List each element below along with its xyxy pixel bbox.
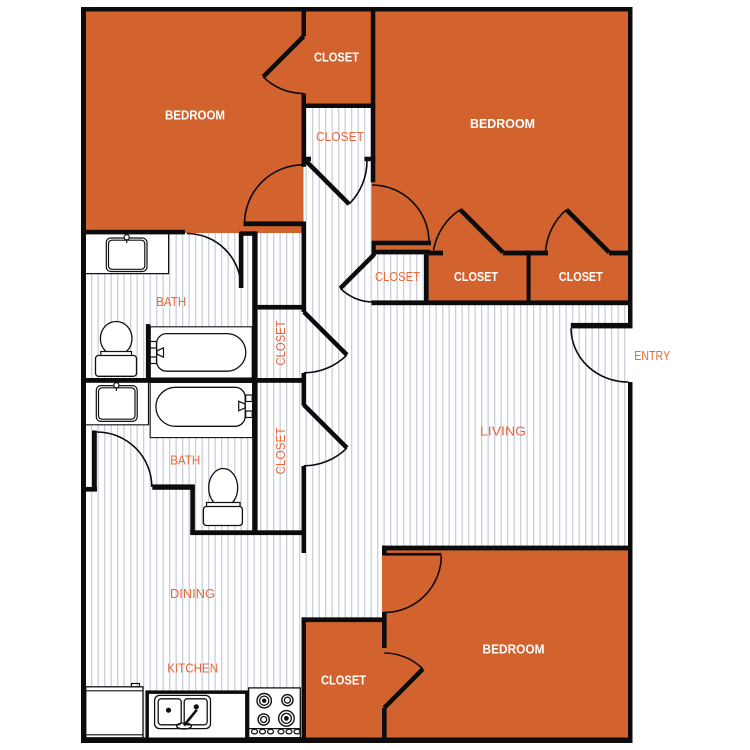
svg-text:DINING: DINING bbox=[170, 586, 215, 601]
svg-text:BATH: BATH bbox=[156, 294, 186, 309]
svg-text:CLOSET: CLOSET bbox=[375, 269, 420, 284]
svg-text:ENTRY: ENTRY bbox=[634, 348, 670, 363]
svg-text:BEDROOM: BEDROOM bbox=[470, 116, 535, 131]
svg-text:CLOSET: CLOSET bbox=[454, 269, 498, 284]
svg-text:BEDROOM: BEDROOM bbox=[165, 108, 225, 123]
svg-text:CLOSET: CLOSET bbox=[273, 427, 288, 474]
svg-text:LIVING: LIVING bbox=[480, 424, 526, 439]
svg-text:CLOSET: CLOSET bbox=[559, 269, 603, 284]
svg-text:CLOSET: CLOSET bbox=[316, 129, 364, 144]
svg-text:CLOSET: CLOSET bbox=[273, 320, 288, 365]
svg-text:BEDROOM: BEDROOM bbox=[483, 642, 545, 657]
svg-text:BATH: BATH bbox=[170, 453, 200, 468]
svg-text:CLOSET: CLOSET bbox=[314, 50, 359, 65]
svg-text:CLOSET: CLOSET bbox=[321, 673, 366, 688]
svg-text:KITCHEN: KITCHEN bbox=[167, 661, 218, 676]
